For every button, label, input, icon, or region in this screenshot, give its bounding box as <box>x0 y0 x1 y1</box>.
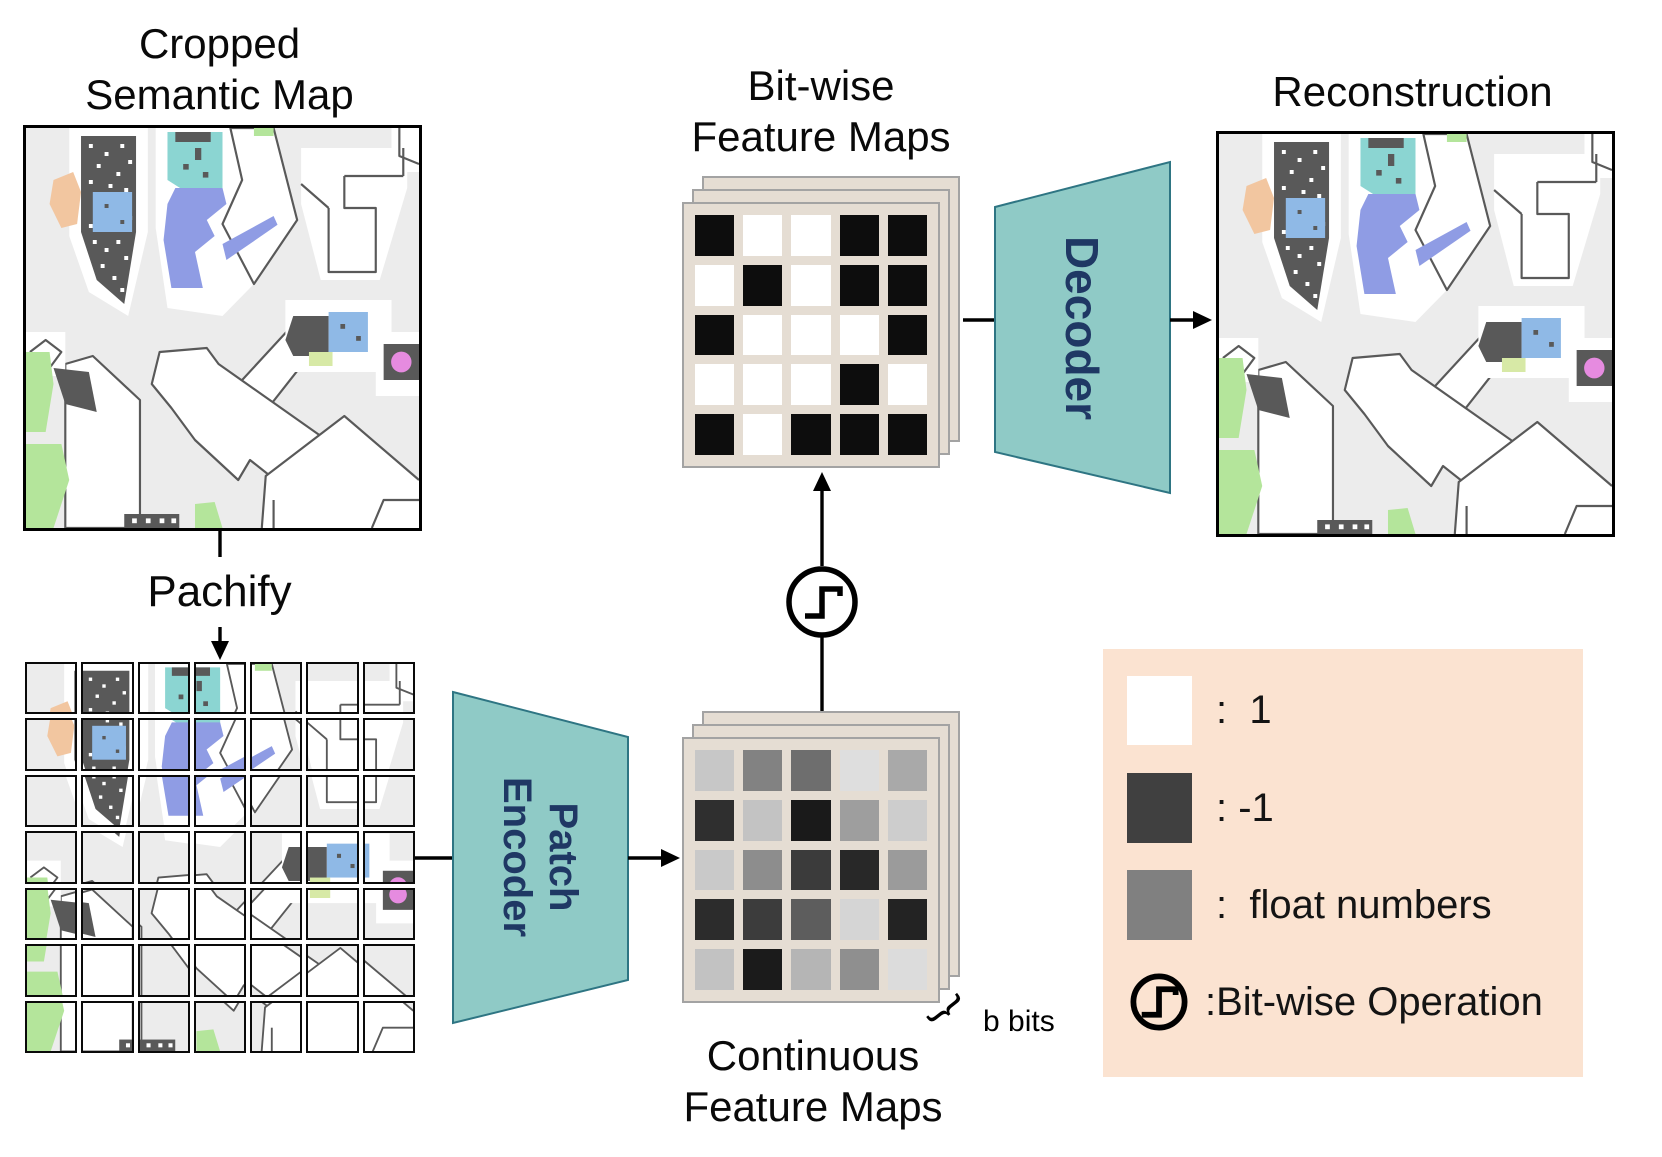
legend-swatch-gray <box>1127 870 1192 940</box>
map-patch <box>363 775 415 827</box>
continuous-cell <box>840 899 879 940</box>
bitwise-cell <box>888 414 927 455</box>
map-patch <box>194 662 246 714</box>
map-patch <box>81 718 133 770</box>
bitwise-cell <box>791 265 830 306</box>
continuous-cell <box>791 899 830 940</box>
patchified-map-grid <box>25 662 415 1053</box>
map-patch <box>250 775 302 827</box>
map-patch <box>138 1001 190 1053</box>
bitwise-cell <box>743 414 782 455</box>
continuous-cell <box>791 750 830 791</box>
patch-encoder-label: Patch Encoder <box>480 707 600 1007</box>
legend-bitwise-operation-icon <box>1127 970 1191 1034</box>
map-patch <box>363 888 415 940</box>
legend-panel: : 1 : -1 : float numbers :Bit-wise Opera… <box>1103 649 1583 1077</box>
map-patch <box>306 662 358 714</box>
map-patch <box>138 831 190 883</box>
continuous-cell <box>695 850 734 891</box>
continuous-cell <box>695 750 734 791</box>
continuous-cell <box>840 850 879 891</box>
patch-encoder-label-line1: Patch <box>540 803 586 912</box>
map-patch <box>306 831 358 883</box>
map-patch <box>25 888 77 940</box>
bitwise-feature-grid <box>695 215 927 455</box>
map-patch <box>138 718 190 770</box>
continuous-cell <box>888 750 927 791</box>
map-patch <box>363 1001 415 1053</box>
map-patch <box>138 775 190 827</box>
map-patch <box>25 775 77 827</box>
bitwise-cell <box>840 414 879 455</box>
map-patch <box>81 888 133 940</box>
map-patch <box>250 1001 302 1053</box>
map-patch <box>81 662 133 714</box>
continuous-cell <box>695 949 734 990</box>
bitwise-cell <box>791 414 830 455</box>
bitwise-cell <box>791 364 830 405</box>
map-patch <box>138 662 190 714</box>
map-patch <box>363 718 415 770</box>
continuous-cell <box>791 800 830 841</box>
map-patch <box>25 944 77 996</box>
bitwise-arrowhead-icon <box>813 472 831 491</box>
bitwise-card-front <box>682 202 940 468</box>
map-patch <box>25 718 77 770</box>
continuous-cell <box>840 949 879 990</box>
map-patch <box>194 1001 246 1053</box>
bitwise-cell <box>695 265 734 306</box>
bitwise-cell <box>888 364 927 405</box>
continuous-cell <box>888 850 927 891</box>
bitwise-cell <box>743 215 782 256</box>
map-patch <box>194 888 246 940</box>
map-patch <box>250 662 302 714</box>
map-patch <box>250 718 302 770</box>
legend-item-minus-one: : -1 <box>1127 773 1583 843</box>
map-patch <box>138 888 190 940</box>
continuous-cell <box>888 899 927 940</box>
bitwise-cell <box>743 265 782 306</box>
continuous-cell <box>743 800 782 841</box>
bitwise-cell <box>888 265 927 306</box>
continuous-cell <box>695 899 734 940</box>
legend-item-float: : float numbers <box>1127 870 1583 940</box>
bitwise-cell <box>840 265 879 306</box>
bitwise-cell <box>743 315 782 356</box>
legend-swatch-white <box>1127 676 1192 745</box>
map-patch <box>306 944 358 996</box>
map-patch <box>363 662 415 714</box>
map-patch <box>250 888 302 940</box>
legend-label-minus-one: : -1 <box>1216 786 1274 831</box>
bitwise-cell <box>743 364 782 405</box>
decoder-label-text: Decoder <box>1055 236 1109 420</box>
bitwise-cell <box>840 315 879 356</box>
continuous-cell <box>743 850 782 891</box>
legend-swatch-dark <box>1127 773 1192 843</box>
bitwise-cell <box>695 364 734 405</box>
map-patch <box>138 944 190 996</box>
continuous-cell <box>888 800 927 841</box>
continuous-cell <box>743 949 782 990</box>
map-patch <box>306 1001 358 1053</box>
map-patch <box>81 775 133 827</box>
map-patch <box>250 831 302 883</box>
patchify-arrowhead-icon <box>211 641 229 660</box>
reconstruction-map-image <box>1216 131 1615 537</box>
map-patch <box>363 831 415 883</box>
bitwise-cell <box>791 315 830 356</box>
bitwise-cell <box>791 215 830 256</box>
continuous-cell <box>840 800 879 841</box>
continuous-cell <box>743 899 782 940</box>
patch-encoder-label-line2: Encoder <box>494 777 540 937</box>
continuous-cell <box>791 850 830 891</box>
map-patch <box>250 944 302 996</box>
bitwise-cell <box>840 215 879 256</box>
cropped-semantic-map-image <box>23 125 422 531</box>
map-patch <box>306 775 358 827</box>
continuous-cell <box>695 800 734 841</box>
bitwise-cell <box>888 315 927 356</box>
legend-label-one: : 1 <box>1216 688 1272 733</box>
map-patch <box>194 944 246 996</box>
encoder-arrowhead-icon <box>661 849 680 867</box>
map-patch <box>194 831 246 883</box>
bits-annotation: b bits <box>983 1005 1055 1039</box>
legend-item-bitwise-op: :Bit-wise Operation <box>1127 970 1583 1034</box>
map-patch <box>306 888 358 940</box>
map-patch <box>363 944 415 996</box>
map-patch <box>81 831 133 883</box>
continuous-cell <box>840 750 879 791</box>
diagram-page: Cropped Semantic Map Pachify Bit-wise Fe… <box>0 0 1662 1157</box>
map-patch <box>81 1001 133 1053</box>
continuous-feature-grid <box>695 750 927 990</box>
map-patch <box>25 1001 77 1053</box>
legend-item-one: : 1 <box>1127 676 1583 745</box>
decoder-label: Decoder <box>1047 158 1117 498</box>
map-patch <box>194 718 246 770</box>
continuous-cell <box>791 949 830 990</box>
reconstruction-arrowhead-icon <box>1193 311 1212 329</box>
map-patch <box>25 662 77 714</box>
bitwise-cell <box>695 215 734 256</box>
bitwise-cell <box>888 215 927 256</box>
map-patch <box>25 831 77 883</box>
map-patch <box>194 775 246 827</box>
bitwise-cell <box>695 414 734 455</box>
legend-label-float: : float numbers <box>1216 883 1492 928</box>
continuous-card-front <box>682 737 940 1003</box>
map-patch <box>306 718 358 770</box>
map-patch <box>81 944 133 996</box>
continuous-cell <box>888 949 927 990</box>
continuous-cell <box>743 750 782 791</box>
legend-label-bitwise-op: :Bit-wise Operation <box>1205 980 1543 1025</box>
bitwise-cell <box>840 364 879 405</box>
bitwise-cell <box>695 315 734 356</box>
